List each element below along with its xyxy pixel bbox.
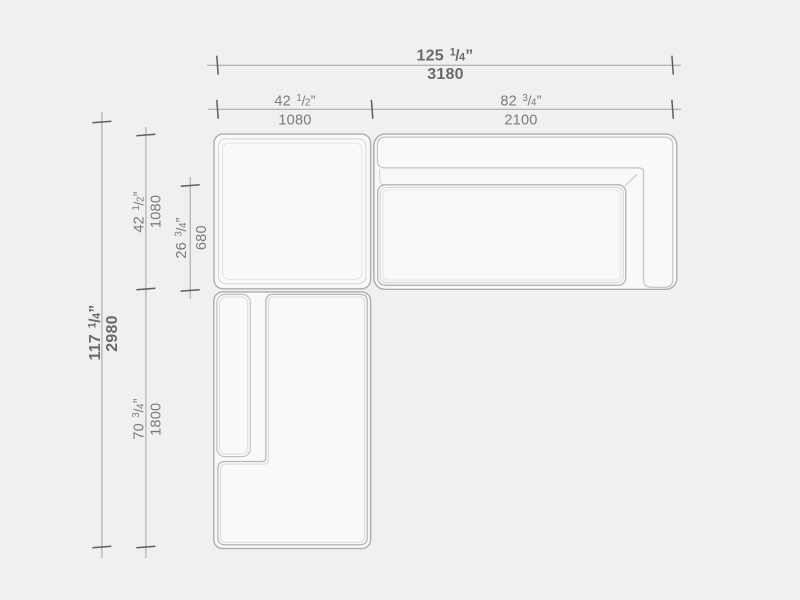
svg-text:1800: 1800 xyxy=(149,403,165,436)
svg-text:117 1/4”: 117 1/4” xyxy=(86,304,104,360)
svg-text:125 1/4”: 125 1/4” xyxy=(417,47,474,65)
svg-text:1080: 1080 xyxy=(278,112,311,128)
svg-text:1080: 1080 xyxy=(149,195,165,228)
svg-text:680: 680 xyxy=(194,225,210,250)
svg-text:2100: 2100 xyxy=(504,112,537,128)
svg-text:2980: 2980 xyxy=(104,315,121,351)
svg-text:3180: 3180 xyxy=(427,66,463,83)
